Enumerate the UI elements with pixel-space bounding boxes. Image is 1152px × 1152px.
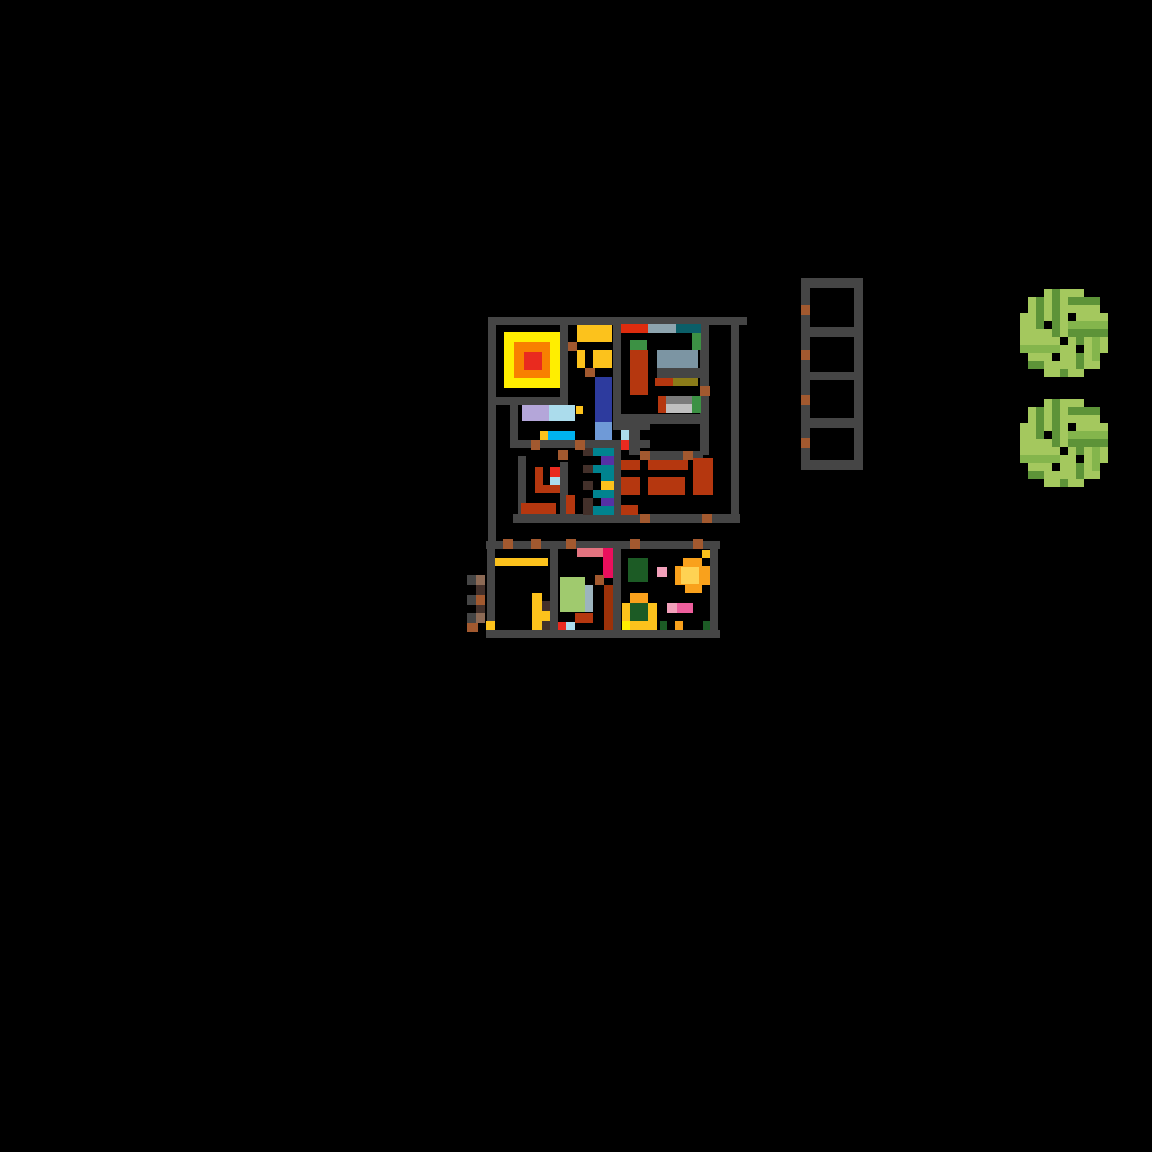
furniture: [521, 503, 556, 514]
tree-top-pixel: [1060, 289, 1068, 297]
tree-bottom-pixel: [1020, 447, 1028, 455]
tree-top-pixel: [1092, 305, 1100, 313]
tree-bottom-pixel: [1084, 447, 1092, 455]
tree-bottom-pixel: [1060, 399, 1068, 407]
tree-top-pixel: [1076, 289, 1084, 297]
tree-bottom-pixel: [1100, 423, 1108, 431]
flower-glow: [683, 558, 702, 566]
bed: [522, 405, 549, 421]
rug-center: [524, 352, 542, 370]
wall: [613, 325, 621, 422]
tile: [550, 477, 560, 485]
tree-top-pixel: [1052, 361, 1060, 369]
tree-bottom-pixel: [1036, 431, 1044, 439]
furniture: [566, 495, 575, 514]
stair: [593, 465, 614, 473]
tree-bottom-pixel: [1076, 479, 1084, 487]
tree-bottom-pixel: [1076, 415, 1084, 423]
ladder-mark: [801, 305, 810, 315]
tree-top-pixel: [1076, 329, 1084, 337]
tree-top-pixel: [1068, 361, 1076, 369]
planter: [630, 593, 648, 603]
tree-bottom-pixel: [1052, 431, 1060, 439]
tree-bottom-pixel: [1100, 447, 1108, 455]
tile: [621, 430, 629, 440]
tree-top-pixel: [1052, 345, 1060, 353]
tree-top-pixel: [1044, 329, 1052, 337]
tree-top-pixel: [1036, 313, 1044, 321]
tree-top-pixel: [1084, 329, 1092, 337]
wall: [488, 397, 568, 405]
tree-bottom-pixel: [1068, 447, 1076, 455]
tree-top-pixel: [1020, 321, 1028, 329]
tree-top-pixel: [1100, 313, 1108, 321]
doorstep: [486, 621, 495, 630]
tree-bottom-pixel: [1100, 431, 1108, 439]
tree-top-pixel: [1052, 289, 1060, 297]
tree-top-pixel: [1100, 345, 1108, 353]
sofa: [621, 477, 640, 495]
furniture: [604, 585, 613, 630]
tree-top-pixel: [1060, 313, 1068, 321]
wall: [629, 430, 640, 455]
tree-top-pixel: [1060, 321, 1068, 329]
tree-bottom-pixel: [1084, 471, 1092, 479]
tree-bottom-pixel: [1060, 415, 1068, 423]
tree-top-pixel: [1076, 313, 1084, 321]
tree-bottom-pixel: [1028, 423, 1036, 431]
tree-top-pixel: [1084, 297, 1092, 305]
tree-bottom-pixel: [1092, 471, 1100, 479]
sofa: [621, 460, 640, 470]
tree-top-pixel: [1068, 297, 1076, 305]
planter: [648, 603, 657, 621]
furniture: [532, 593, 542, 630]
tree-top-pixel: [1036, 353, 1044, 361]
bed: [549, 405, 575, 421]
door: [683, 451, 693, 460]
tree-bottom-pixel: [1092, 415, 1100, 423]
tree-top-pixel: [1028, 305, 1036, 313]
tree-top-pixel: [1076, 369, 1084, 377]
tree-top-pixel: [1028, 337, 1036, 345]
shelf-item: [666, 404, 692, 413]
tree-bottom-pixel: [1044, 463, 1052, 471]
tree-bottom-pixel: [1036, 471, 1044, 479]
bookcase: [630, 350, 648, 395]
tile: [558, 622, 566, 630]
tree-bottom-pixel: [1092, 423, 1100, 431]
tree-top-pixel: [1020, 329, 1028, 337]
ext-ladder-rung: [467, 613, 476, 623]
tree-bottom-pixel: [1060, 423, 1068, 431]
flower: [657, 567, 667, 577]
tree-top-pixel: [1044, 313, 1052, 321]
wall-left: [488, 325, 496, 541]
tree-bottom-pixel: [1084, 431, 1092, 439]
tree-top-pixel: [1044, 289, 1052, 297]
tree-top-pixel: [1028, 361, 1036, 369]
tree-top-pixel: [1028, 321, 1036, 329]
wall-annex-right: [710, 549, 718, 630]
stair: [601, 473, 614, 481]
sofa: [648, 477, 685, 495]
tree-top-pixel: [1052, 321, 1060, 329]
tree-top-pixel: [1092, 353, 1100, 361]
tree-top-pixel: [1052, 313, 1060, 321]
stair-step: [583, 465, 593, 473]
tree-bottom-pixel: [1092, 439, 1100, 447]
door: [585, 368, 595, 377]
tree-top-pixel: [1092, 297, 1100, 305]
door: [566, 539, 576, 549]
shelf-item: [692, 333, 701, 350]
tile: [621, 440, 629, 450]
shelf-item: [666, 396, 692, 404]
shelf-item: [657, 350, 698, 368]
tree-bottom-pixel: [1028, 455, 1036, 463]
tree-bottom-pixel: [1068, 431, 1076, 439]
tree-top-pixel: [1044, 321, 1052, 329]
flower-core: [681, 567, 699, 584]
tree-top-pixel: [1028, 353, 1036, 361]
tree-top-pixel: [1092, 361, 1100, 369]
tree-top-pixel: [1036, 305, 1044, 313]
ext-ladder-rung: [467, 575, 476, 585]
tree-top-pixel: [1084, 353, 1092, 361]
tree-top-pixel: [1044, 305, 1052, 313]
tile: [703, 621, 710, 630]
tree-bottom-pixel: [1084, 455, 1092, 463]
tree-bottom-pixel: [1044, 431, 1052, 439]
tree-top-pixel: [1044, 361, 1052, 369]
tree-bottom-pixel: [1092, 447, 1100, 455]
stair: [601, 456, 614, 465]
tree-bottom-pixel: [1028, 447, 1036, 455]
tile: [540, 431, 548, 440]
door: [531, 440, 540, 450]
tree-bottom-pixel: [1076, 447, 1084, 455]
tree-top-pixel: [1036, 337, 1044, 345]
tree-bottom-pixel: [1044, 447, 1052, 455]
furniture: [542, 611, 550, 621]
chair: [577, 350, 585, 368]
tree-top-pixel: [1052, 369, 1060, 377]
tile: [702, 550, 710, 558]
tree-bottom-pixel: [1052, 439, 1060, 447]
tree-top-pixel: [1060, 345, 1068, 353]
door: [531, 539, 541, 549]
tree-bottom-pixel: [1068, 423, 1076, 431]
tree-bottom-pixel: [1060, 447, 1068, 455]
tree-bottom-pixel: [1068, 463, 1076, 471]
furniture: [542, 621, 550, 630]
door: [568, 342, 577, 351]
tree-bottom-pixel: [1060, 463, 1068, 471]
tree-bottom-pixel: [1084, 463, 1092, 471]
door: [693, 539, 703, 549]
tree-top-pixel: [1068, 329, 1076, 337]
tree-bottom-pixel: [1052, 479, 1060, 487]
tree-top-pixel: [1052, 297, 1060, 305]
tree-bottom-pixel: [1076, 399, 1084, 407]
tree-bottom-pixel: [1052, 407, 1060, 415]
stair-step: [583, 498, 593, 506]
shelf-bar: [801, 327, 863, 337]
tree-bottom-pixel: [1092, 431, 1100, 439]
tree-bottom-pixel: [1068, 479, 1076, 487]
door: [702, 514, 712, 523]
stair: [593, 448, 614, 456]
tree-top-pixel: [1068, 369, 1076, 377]
tree-bottom-pixel: [1044, 439, 1052, 447]
door: [700, 386, 710, 396]
ext-ladder: [467, 623, 478, 632]
furniture: [595, 575, 604, 585]
tree-bottom-pixel: [1044, 471, 1052, 479]
shelf-item: [648, 324, 676, 333]
tree-top-pixel: [1076, 337, 1084, 345]
shelf-item: [658, 396, 666, 413]
shelf-wall: [657, 368, 700, 378]
tree-top-pixel: [1060, 297, 1068, 305]
tree-bottom-pixel: [1068, 399, 1076, 407]
planter: [622, 603, 630, 621]
tree-bottom-pixel: [1028, 431, 1036, 439]
ext-ladder-rung: [467, 595, 476, 605]
tree-top-pixel: [1068, 289, 1076, 297]
shelf-bar: [801, 372, 863, 380]
shelf-bar: [801, 460, 863, 470]
tree-bottom-pixel: [1028, 439, 1036, 447]
counter: [495, 558, 548, 566]
tree-bottom-pixel: [1036, 407, 1044, 415]
tree-top-pixel: [1084, 313, 1092, 321]
tree-bottom-pixel: [1076, 431, 1084, 439]
tile: [576, 406, 583, 414]
flower-glow: [685, 585, 702, 593]
tree-top-pixel: [1100, 337, 1108, 345]
tree-bottom-pixel: [1044, 407, 1052, 415]
furniture: [542, 601, 550, 611]
tree-top-pixel: [1028, 313, 1036, 321]
tree-top-pixel: [1060, 361, 1068, 369]
tree-top-pixel: [1068, 321, 1076, 329]
tree-bottom-pixel: [1044, 423, 1052, 431]
wall: [614, 448, 621, 515]
tree-top-pixel: [1028, 297, 1036, 305]
tree-top-pixel: [1076, 305, 1084, 313]
ext-ladder: [476, 575, 485, 585]
tree-bottom-pixel: [1076, 471, 1084, 479]
tree-top-pixel: [1020, 313, 1028, 321]
furniture: [575, 613, 593, 623]
tree-bottom-pixel: [1076, 455, 1084, 463]
tree-bottom-pixel: [1020, 439, 1028, 447]
tree-top-pixel: [1092, 345, 1100, 353]
ext-ladder: [476, 613, 485, 623]
tree-bottom-pixel: [1028, 463, 1036, 471]
tree-top-pixel: [1044, 345, 1052, 353]
tree-top-pixel: [1084, 361, 1092, 369]
tree-bottom-pixel: [1092, 455, 1100, 463]
tree-bottom-pixel: [1044, 479, 1052, 487]
tree-bottom-pixel: [1068, 439, 1076, 447]
wall: [560, 325, 568, 405]
tree-bottom-pixel: [1076, 423, 1084, 431]
ladder-mark: [801, 438, 810, 448]
tree-bottom-pixel: [1068, 407, 1076, 415]
tree-top-pixel: [1068, 353, 1076, 361]
tree-top-pixel: [1084, 321, 1092, 329]
wall-right: [731, 325, 739, 523]
tree-top-pixel: [1068, 337, 1076, 345]
tree-bottom-pixel: [1020, 423, 1028, 431]
tree-bottom-pixel: [1084, 407, 1092, 415]
tile: [566, 622, 575, 630]
tree-top-pixel: [1020, 337, 1028, 345]
tree-top-pixel: [1092, 313, 1100, 321]
rug: [560, 577, 585, 612]
flower: [677, 603, 693, 613]
tree-bottom-pixel: [1084, 423, 1092, 431]
stair: [593, 506, 614, 515]
plant-bed: [628, 558, 648, 582]
tree-bottom-pixel: [1020, 431, 1028, 439]
tree-bottom-pixel: [1052, 463, 1060, 471]
planter: [622, 621, 630, 630]
tree-top-pixel: [1100, 329, 1108, 337]
counter: [548, 431, 575, 440]
tree-bottom-pixel: [1084, 439, 1092, 447]
table: [577, 325, 612, 342]
tree-bottom-pixel: [1076, 439, 1084, 447]
tile: [675, 621, 683, 630]
rug: [585, 585, 593, 612]
tree-top-pixel: [1060, 305, 1068, 313]
tree-top-pixel: [1084, 305, 1092, 313]
tree-bottom-pixel: [1068, 455, 1076, 463]
tree-top-pixel: [1092, 321, 1100, 329]
tree-top-pixel: [1052, 353, 1060, 361]
ladder-mark: [801, 350, 810, 360]
chair: [593, 350, 612, 368]
shelf-bar: [801, 418, 863, 428]
planter-bush: [630, 603, 648, 621]
tile: [660, 621, 667, 630]
wall: [621, 414, 708, 424]
tree-bottom-pixel: [1100, 439, 1108, 447]
planter: [630, 621, 657, 630]
tree-bottom-pixel: [1052, 399, 1060, 407]
ladder-mark: [801, 395, 810, 405]
tree-bottom-pixel: [1068, 471, 1076, 479]
tree-bottom-pixel: [1028, 407, 1036, 415]
tree-bottom-pixel: [1052, 447, 1060, 455]
door: [503, 539, 513, 549]
shelf-item: [673, 378, 698, 386]
tree-top-pixel: [1036, 297, 1044, 305]
tree-bottom-pixel: [1052, 471, 1060, 479]
tree-top-pixel: [1084, 345, 1092, 353]
tree-top-pixel: [1044, 337, 1052, 345]
door: [558, 450, 568, 460]
tree-bottom-pixel: [1092, 463, 1100, 471]
tree-bottom-pixel: [1076, 407, 1084, 415]
tree-bottom-pixel: [1028, 415, 1036, 423]
tree-top-pixel: [1052, 329, 1060, 337]
tree-bottom-pixel: [1036, 463, 1044, 471]
tree-top-pixel: [1036, 321, 1044, 329]
tree-bottom-pixel: [1092, 407, 1100, 415]
tree-top-pixel: [1068, 313, 1076, 321]
tree-top-pixel: [1060, 329, 1068, 337]
tree-top-pixel: [1092, 337, 1100, 345]
tree-top-pixel: [1036, 329, 1044, 337]
wall-annex-bottom: [486, 630, 720, 638]
tree-top-pixel: [1036, 345, 1044, 353]
game-viewport[interactable]: [0, 0, 1152, 1152]
tile: [550, 467, 560, 477]
shelf-item: [630, 340, 647, 350]
tree-top-pixel: [1068, 305, 1076, 313]
wall: [550, 549, 558, 630]
tree-bottom-pixel: [1036, 415, 1044, 423]
tree-bottom-pixel: [1052, 415, 1060, 423]
shelf-item: [655, 378, 673, 386]
ext-ladder: [476, 585, 485, 595]
tree-top-pixel: [1052, 305, 1060, 313]
furniture: [535, 485, 560, 493]
tree-bottom-pixel: [1060, 439, 1068, 447]
shelf-item: [676, 324, 701, 333]
tree-bottom-pixel: [1044, 455, 1052, 463]
tree-bottom-pixel: [1060, 431, 1068, 439]
tree-bottom-pixel: [1052, 455, 1060, 463]
tree-bottom-pixel: [1060, 455, 1068, 463]
tree-top-pixel: [1076, 361, 1084, 369]
tree-bottom-pixel: [1100, 455, 1108, 463]
shelf-bar: [801, 278, 863, 288]
stair-step: [583, 506, 593, 515]
tree-bottom-pixel: [1036, 439, 1044, 447]
wall-top: [488, 317, 747, 325]
shelf-item: [692, 396, 701, 413]
tree-top-pixel: [1076, 353, 1084, 361]
tree-top-pixel: [1060, 337, 1068, 345]
tree-top-pixel: [1052, 337, 1060, 345]
tree-top-pixel: [1060, 369, 1068, 377]
tree-bottom-pixel: [1068, 415, 1076, 423]
door: [575, 440, 585, 450]
shelf-item: [621, 324, 648, 333]
sofa: [648, 460, 688, 470]
flower: [667, 603, 677, 613]
tree-bottom-pixel: [1020, 455, 1028, 463]
tree-top-pixel: [1060, 353, 1068, 361]
tree-bottom-pixel: [1052, 423, 1060, 431]
tree-top-pixel: [1028, 329, 1036, 337]
tree-bottom-pixel: [1044, 399, 1052, 407]
furniture: [577, 548, 603, 557]
tree-top-pixel: [1020, 345, 1028, 353]
tree-top-pixel: [1076, 297, 1084, 305]
tree-top-pixel: [1076, 321, 1084, 329]
stair: [593, 490, 614, 498]
door: [630, 539, 640, 549]
sofa: [693, 458, 713, 495]
tree-bottom-pixel: [1060, 407, 1068, 415]
